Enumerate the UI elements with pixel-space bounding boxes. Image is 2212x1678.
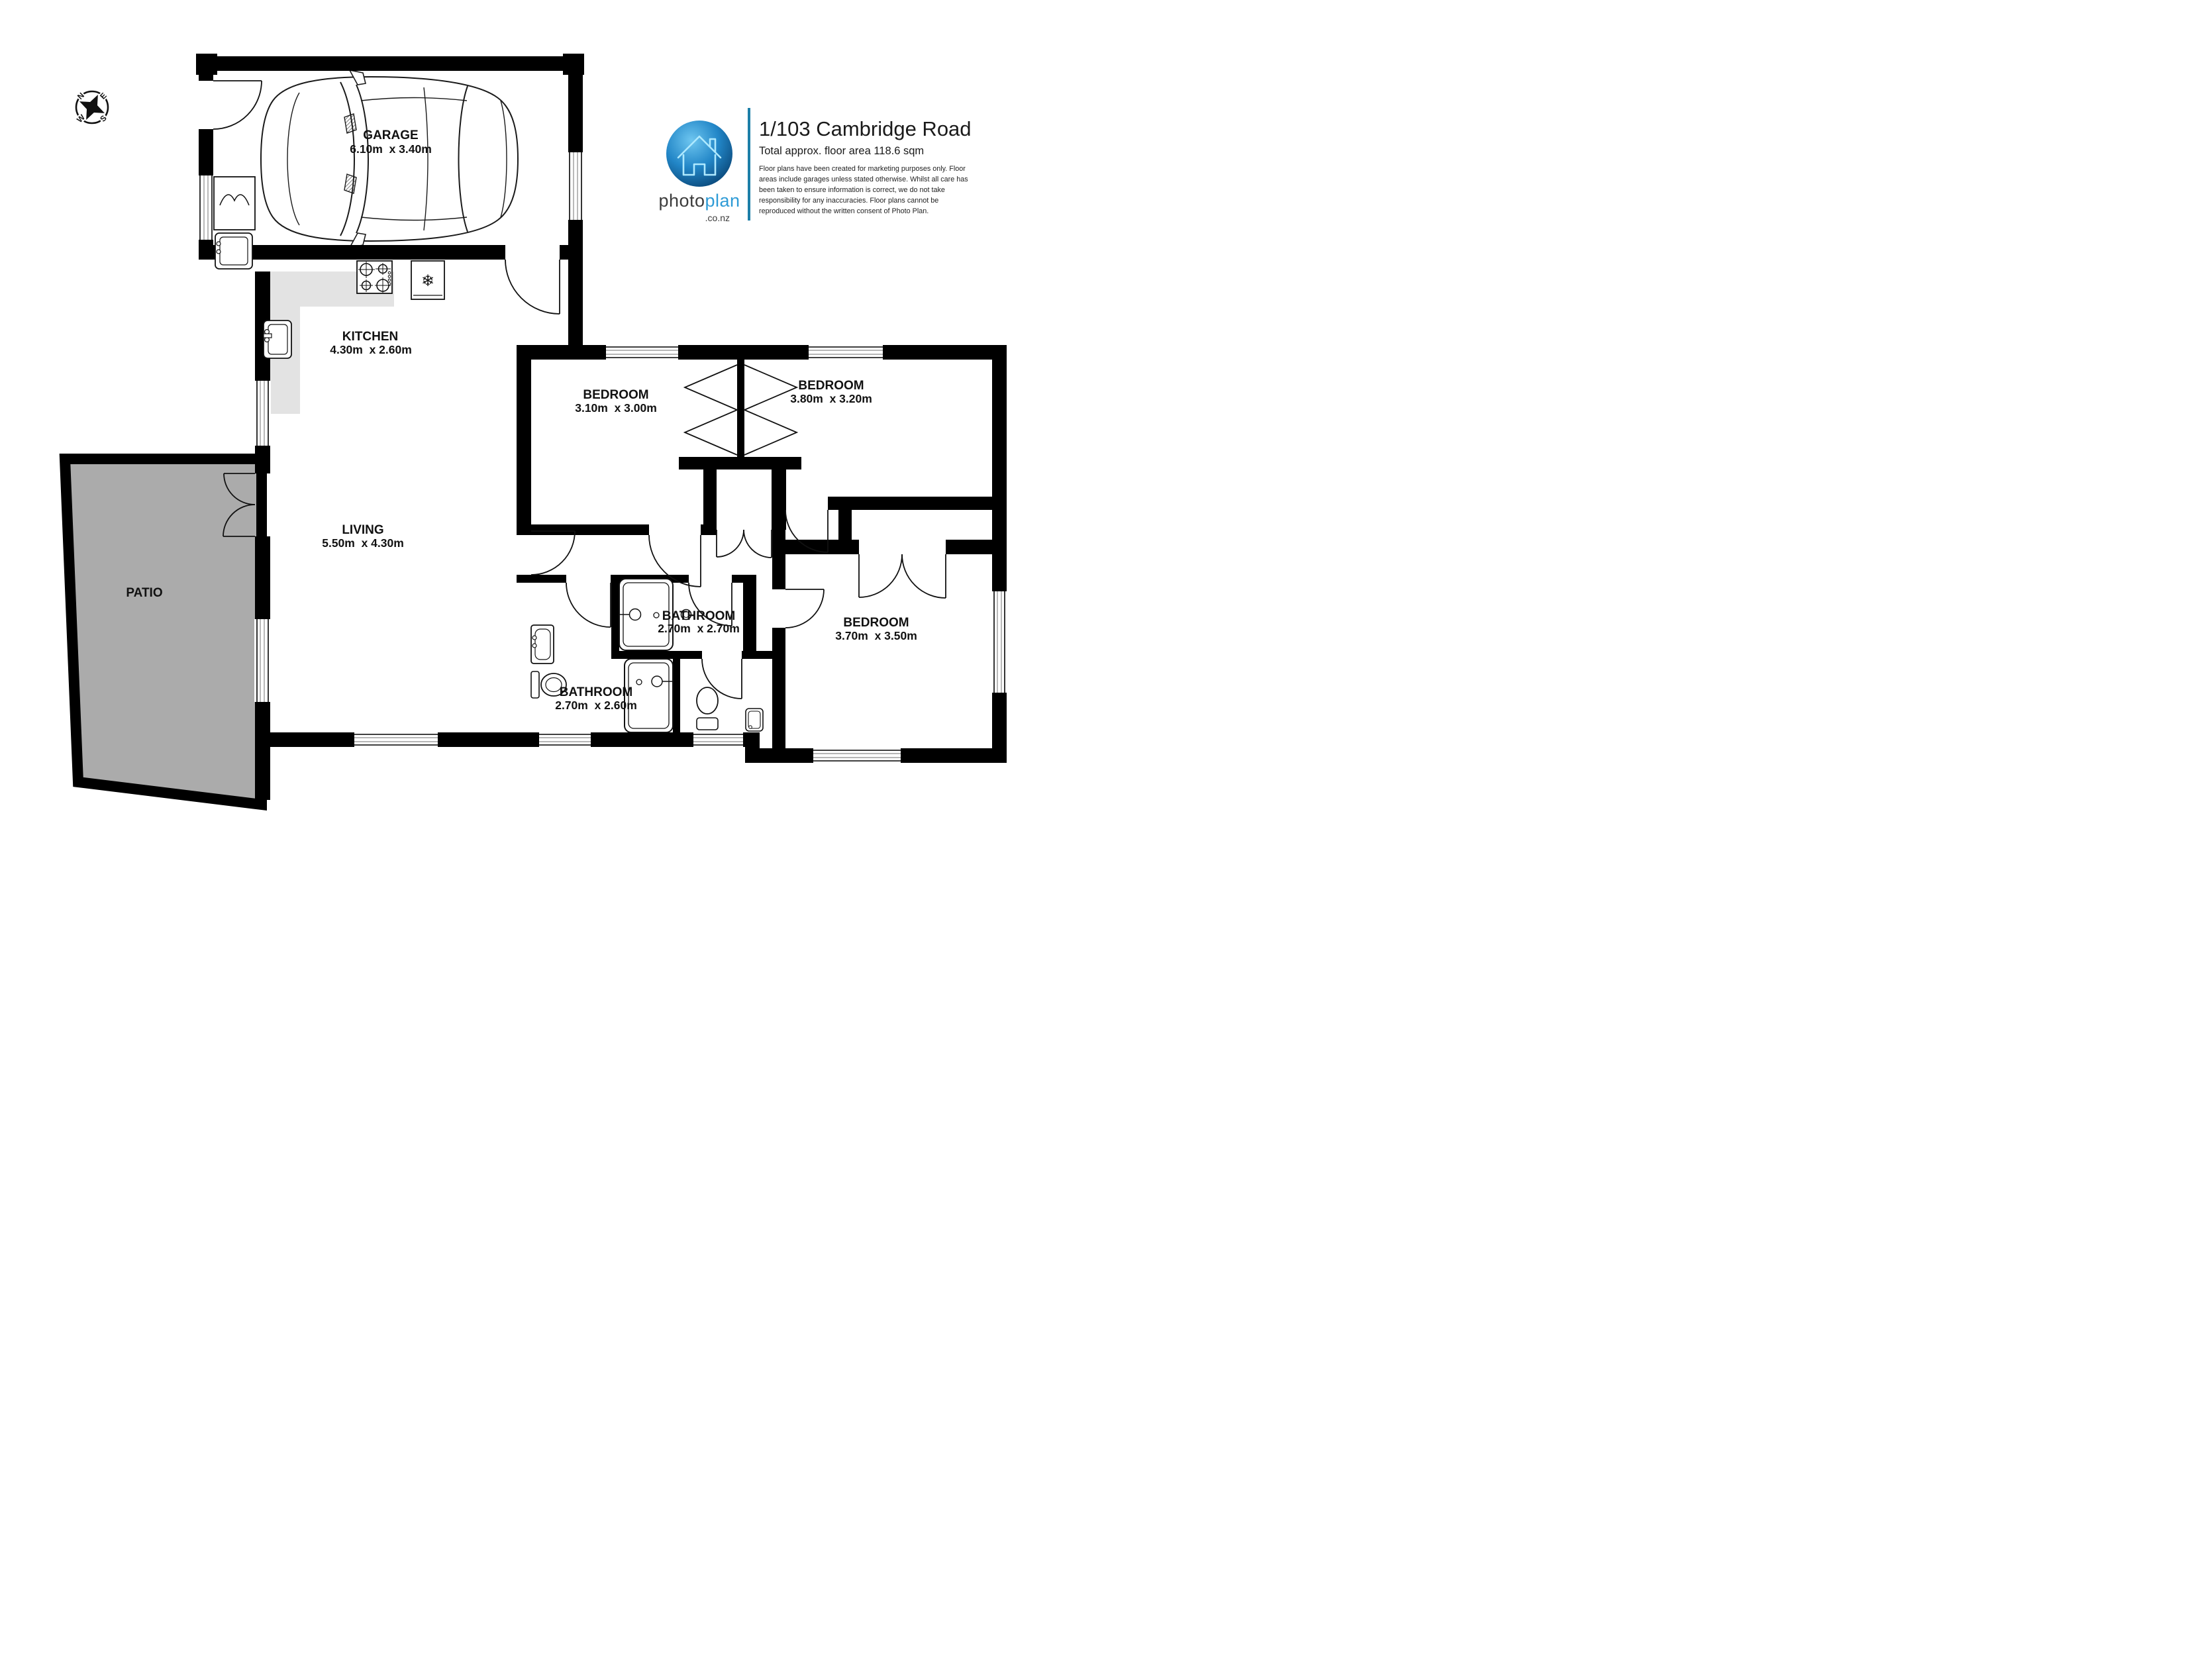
brand-photo: photo	[658, 191, 705, 211]
snowflake-icon: ❄	[421, 272, 434, 290]
disclaimer-line-4: responsibility for any inaccuracies. Flo…	[759, 197, 938, 205]
logo-sphere	[666, 121, 732, 187]
photoplan-logo: photoplan .co.nz	[658, 121, 740, 223]
fridge: ❄	[411, 261, 444, 299]
bifold-closet-bedroom2	[744, 365, 797, 455]
kitchen-sink	[264, 321, 291, 358]
bedroom2-label: BEDROOM	[798, 379, 864, 393]
window-living-south	[354, 732, 438, 748]
patio-slab	[65, 459, 262, 805]
bathroom1-label: BATHROOM	[662, 609, 735, 623]
patio-area	[65, 459, 262, 805]
header-block: 1/103 Cambridge Road Total approx. floor…	[748, 108, 972, 221]
garage-dims: 6.10m x 3.40m	[350, 142, 432, 156]
disclaimer-line-5: reproduced without the written consent o…	[759, 207, 929, 215]
toilet-2	[697, 687, 718, 730]
door-bedroom3	[785, 589, 824, 628]
window-kitchen	[254, 381, 271, 446]
bedroom3-label: BEDROOM	[843, 616, 909, 630]
window-wc-south	[693, 732, 743, 748]
window-garage-left	[198, 175, 214, 240]
compass-rose: N E S W	[74, 89, 111, 126]
floorplan-svg: ❄	[0, 0, 1106, 839]
door-linen-closet	[717, 530, 772, 558]
brand-wordmark: photoplan	[658, 191, 740, 211]
window-bedroom1-north	[606, 344, 678, 360]
window-bedroom2-north	[809, 344, 883, 360]
garage-label: GARAGE	[363, 128, 418, 142]
living-label: LIVING	[342, 523, 383, 537]
bedroom2-dims: 3.80m x 3.20m	[790, 392, 872, 405]
stove	[357, 261, 392, 293]
garage-sink	[215, 233, 252, 269]
disclaimer-line-2: areas include garages unless stated othe…	[759, 175, 968, 183]
kitchen-label: KITCHEN	[342, 330, 398, 344]
window-living-west	[254, 619, 271, 702]
header-divider	[748, 108, 750, 221]
window-bathroom2-south	[539, 732, 591, 748]
bathroom1-dims: 2.70m x 2.70m	[658, 622, 740, 635]
bathroom2-dims: 2.70m x 2.60m	[555, 699, 637, 712]
window-bedroom3-east	[991, 591, 1007, 693]
living-dims: 5.50m x 4.30m	[322, 536, 404, 550]
wc-sink	[746, 709, 763, 731]
floorplan-page: ❄	[0, 0, 1106, 839]
door-garage-side	[213, 81, 262, 129]
bedroom1-dims: 3.10m x 3.00m	[575, 401, 657, 415]
windows	[198, 152, 1007, 764]
window-garage-right	[568, 152, 583, 220]
bifold-closet-bedroom1	[685, 365, 737, 455]
vanity-sink	[531, 625, 554, 664]
door-bathroom2	[566, 583, 611, 627]
disclaimer-line-1: Floor plans have been created for market…	[759, 165, 966, 173]
bedroom3-dims: 3.70m x 3.50m	[835, 629, 917, 642]
bedroom1-label: BEDROOM	[583, 388, 648, 402]
brand-plan: plan	[705, 191, 740, 211]
kitchen-dims: 4.30m x 2.60m	[330, 343, 412, 356]
door-living-hall	[531, 531, 575, 575]
patio-label: PATIO	[126, 586, 162, 600]
door-entry	[505, 260, 560, 314]
brand-domain: .co.nz	[705, 213, 730, 223]
disclaimer-line-3: been taken to ensure information is corr…	[759, 186, 945, 194]
compass-n: N	[75, 91, 86, 101]
fixtures: ❄	[214, 177, 763, 732]
window-bedroom3-south	[813, 748, 901, 764]
car-illustration	[261, 70, 518, 248]
bathroom2-label: BATHROOM	[560, 685, 632, 699]
compass-w: W	[75, 113, 87, 124]
area-subtitle: Total approx. floor area 118.6 sqm	[759, 145, 924, 157]
door-bedroom3-closet	[859, 554, 946, 598]
laundry-tub	[214, 177, 255, 230]
page-title: 1/103 Cambridge Road	[759, 117, 972, 140]
